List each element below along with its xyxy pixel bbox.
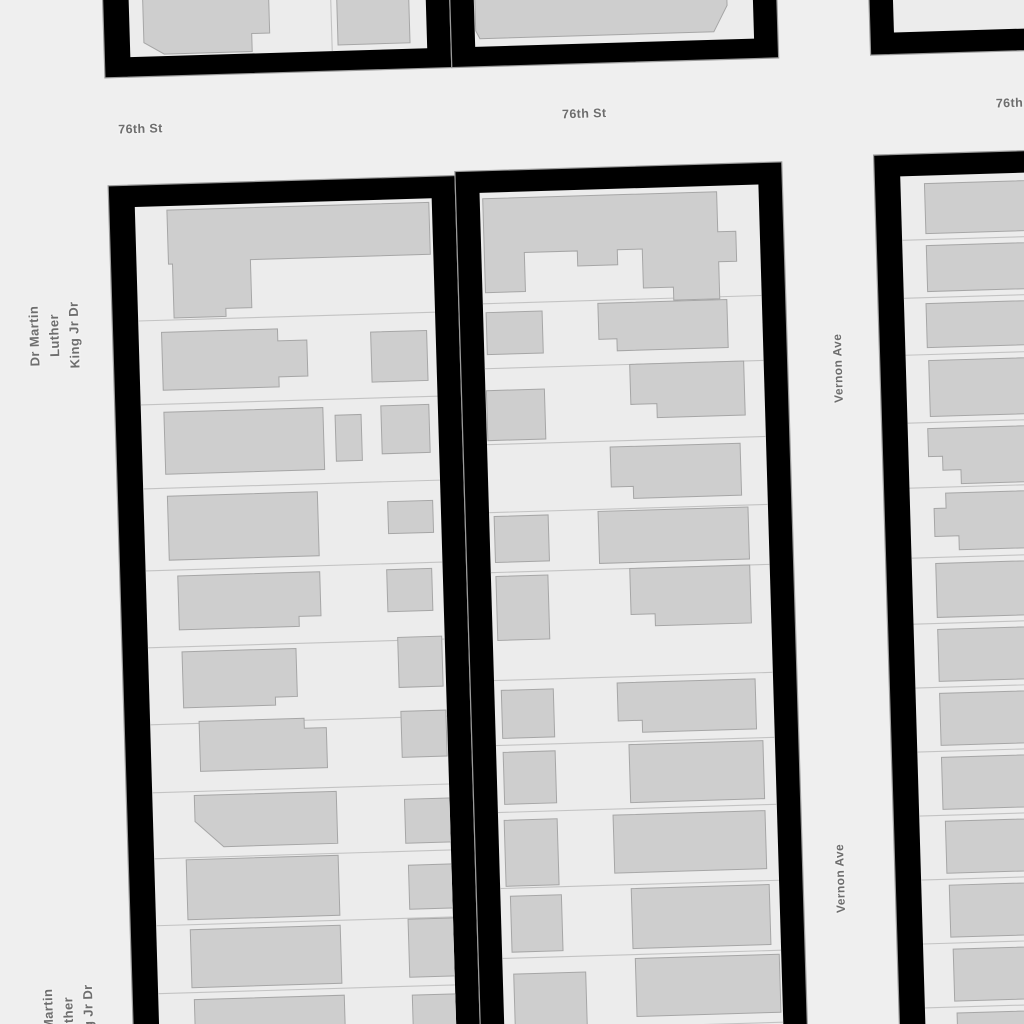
building-footprint	[629, 741, 765, 803]
city-block-left	[108, 176, 482, 1024]
building-footprint	[194, 995, 346, 1024]
building-footprint	[598, 300, 728, 352]
street-label-76th-st-right: 76th St	[996, 95, 1024, 110]
building-footprint	[486, 311, 543, 355]
building-footprint	[186, 855, 340, 919]
building-footprint	[926, 296, 1024, 348]
building-footprint	[926, 238, 1024, 292]
building-footprint	[598, 507, 749, 563]
building-footprint	[408, 864, 455, 909]
city-block-top-left	[101, 0, 452, 78]
building-footprint	[924, 176, 1024, 234]
building-footprint	[510, 895, 563, 952]
street-label-vernon-ave-lower: Vernon Ave	[832, 844, 848, 914]
building-footprint	[190, 925, 342, 987]
building-footprint	[401, 710, 447, 757]
city-block-middle	[455, 162, 809, 1024]
building-footprint	[408, 918, 458, 977]
street-label-vernon-ave-upper: Vernon Ave	[830, 334, 846, 404]
building-footprint	[936, 556, 1024, 618]
city-block-top-right	[867, 0, 1024, 55]
building-footprint	[335, 0, 410, 45]
building-footprint	[514, 972, 588, 1024]
building-footprint	[335, 414, 362, 461]
building-footprint	[504, 819, 559, 887]
building-footprint	[387, 568, 433, 611]
map-viewport[interactable]: 76th St76th St76th StDr MartinLutherKing…	[0, 0, 1024, 1024]
map-tiles: 76th St76th St76th StDr MartinLutherKing…	[0, 0, 1024, 1024]
building-footprint	[398, 636, 443, 687]
building-footprint	[371, 330, 428, 382]
building-footprint	[938, 622, 1024, 682]
building-footprint	[941, 750, 1024, 810]
building-footprint	[496, 575, 550, 641]
building-footprint	[613, 811, 767, 873]
building-footprint	[412, 994, 462, 1024]
building-footprint	[194, 791, 337, 847]
building-footprint	[631, 885, 771, 949]
building-footprint	[486, 389, 545, 441]
building-footprint	[167, 492, 319, 560]
building-footprint	[381, 404, 430, 453]
building-footprint	[635, 954, 781, 1016]
building-footprint	[501, 689, 554, 739]
building-footprint	[388, 500, 434, 533]
building-footprint	[929, 353, 1024, 417]
building-footprint	[949, 877, 1024, 937]
building-footprint	[945, 814, 1024, 874]
map-rotated-layer: 76th St76th St76th StDr MartinLutherKing…	[0, 0, 1024, 1024]
building-footprint	[940, 686, 1024, 746]
block-interior	[891, 0, 1024, 32]
city-block-right	[874, 145, 1024, 1024]
building-footprint	[164, 408, 325, 475]
building-footprint	[404, 798, 453, 843]
building-footprint	[503, 751, 557, 805]
building-footprint	[141, 0, 270, 55]
street-label-76th-st-left: 76th St	[118, 121, 163, 136]
building-footprint	[953, 941, 1024, 1001]
city-block-top-middle	[448, 0, 779, 68]
building-footprint	[494, 515, 549, 563]
street-label-76th-st-center: 76th St	[562, 106, 607, 121]
